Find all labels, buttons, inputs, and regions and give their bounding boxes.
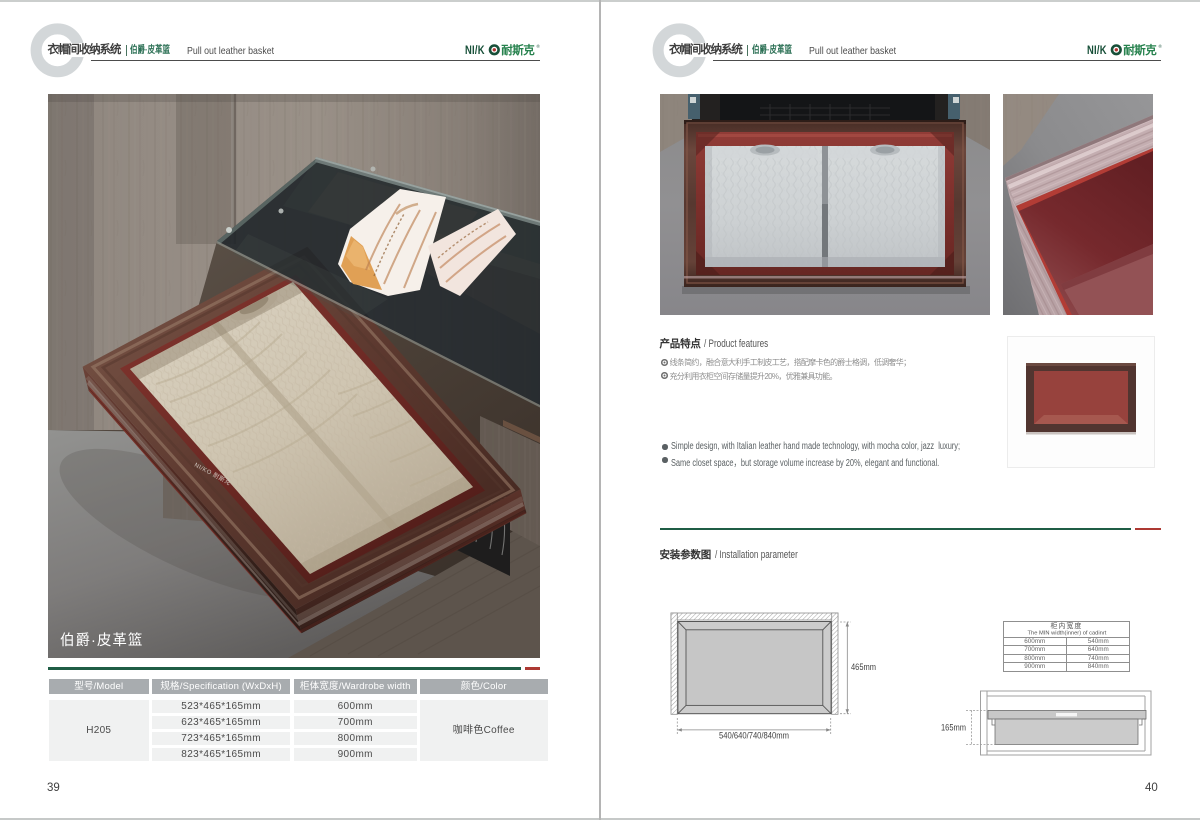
svg-text:465mm: 465mm [851, 662, 876, 673]
svg-text:540/640/740/840mm: 540/640/740/840mm [719, 731, 789, 742]
svg-text:耐斯克: 耐斯克 [1123, 43, 1157, 57]
svg-text:®: ® [537, 43, 541, 49]
svg-text:NI/K: NI/K [1087, 44, 1107, 57]
svg-text:NI/K: NI/K [465, 44, 485, 57]
svg-text:®: ® [1158, 43, 1162, 49]
svg-text:耐斯克: 耐斯克 [501, 43, 535, 57]
svg-text:165mm: 165mm [941, 723, 966, 734]
svg-text:伯爵·皮革篮: 伯爵·皮革篮 [60, 631, 143, 649]
